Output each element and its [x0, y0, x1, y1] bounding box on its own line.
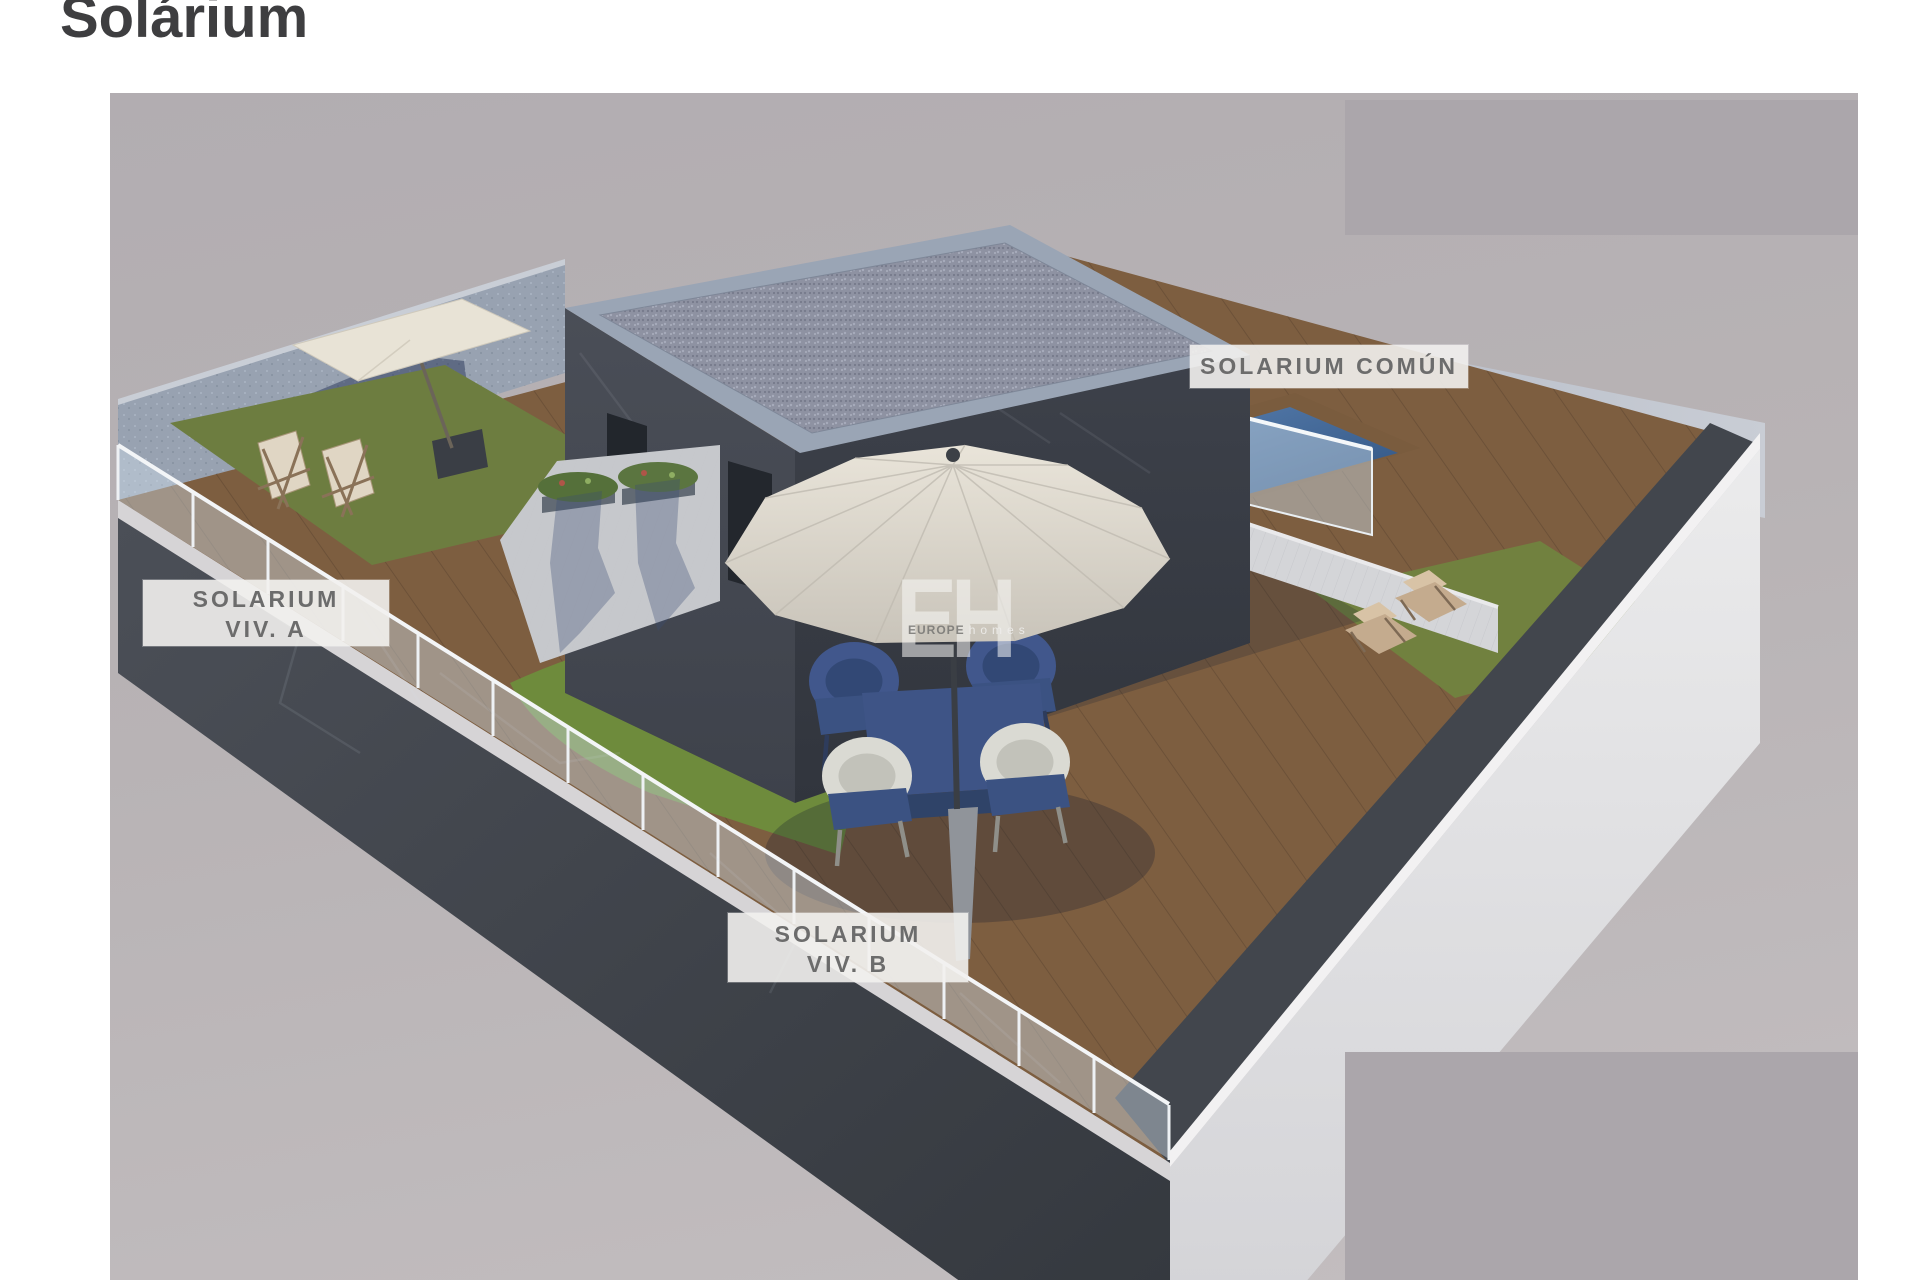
page: Solárium — [0, 0, 1920, 1280]
redacted-block-top-right — [1345, 100, 1858, 235]
solarium-render: EH EUROPEhomes SOLARIUM COMÚN SOLARIUM V… — [110, 93, 1858, 1280]
page-title: Solárium — [60, 0, 308, 51]
label-comun-text: SOLARIUM COMÚN — [1190, 345, 1468, 388]
label-viva-line1: SOLARIUM — [143, 584, 389, 614]
label-solarium-viv-b: SOLARIUM VIV. B — [728, 913, 968, 982]
label-solarium-comun: SOLARIUM COMÚN — [1190, 345, 1468, 388]
label-vivb-line2: VIV. B — [728, 949, 968, 979]
label-viva-line2: VIV. A — [143, 614, 389, 644]
redacted-block-bottom-right — [1345, 1052, 1858, 1280]
label-vivb-line1: SOLARIUM — [728, 919, 968, 949]
label-solarium-viv-a: SOLARIUM VIV. A — [143, 580, 389, 646]
